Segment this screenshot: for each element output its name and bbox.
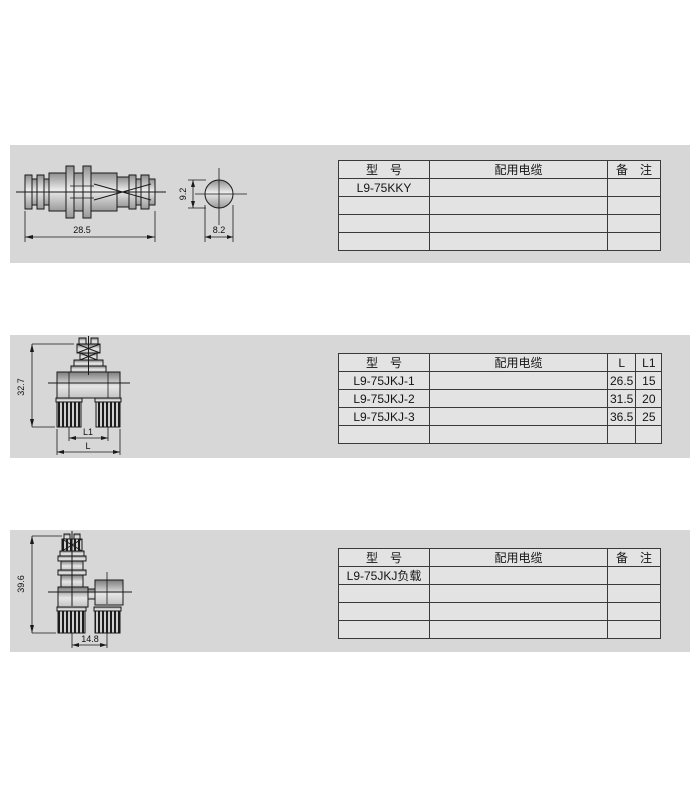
load-height-dimension: 39.6 [16, 536, 62, 633]
tee-height-dim-label: 32.7 [16, 378, 26, 396]
col-header-cable: 配用电缆 [430, 354, 608, 372]
adapter-profile-view [16, 166, 166, 218]
cable-cell [430, 215, 608, 233]
adapter-connector-drawing: 28.5 9.2 [10, 145, 330, 263]
cable-cell [430, 585, 608, 603]
section-tee-jack-panel: 32.7 L1 L 型 号 配用电缆 [10, 335, 690, 458]
table-row: L9-75JKJ-3 36.5 25 [339, 408, 662, 426]
load-spec-table: 型 号 配用电缆 备 注 L9-75JKJ负载 [338, 548, 661, 639]
remarks-cell [608, 197, 661, 215]
model-cell: L9-75JKJ-3 [339, 408, 430, 426]
model-cell [339, 585, 430, 603]
L1-cell: 20 [636, 390, 662, 408]
table-row [339, 426, 662, 444]
model-cell [339, 426, 430, 444]
table-row [339, 621, 661, 639]
model-cell: L9-75KKY [339, 179, 430, 197]
model-cell: L9-75JKJ负载 [339, 567, 430, 585]
table-header-row: 型 号 配用电缆 备 注 [339, 549, 661, 567]
section-load-panel: 39.6 14.8 型 号 配用电缆 备 注 L9-75JKJ负载 [10, 530, 690, 652]
remarks-cell [608, 233, 661, 251]
load-height-dim-label: 39.6 [16, 575, 26, 593]
catalog-page: 28.5 9.2 [0, 0, 700, 804]
cable-cell [430, 567, 608, 585]
L-cell: 36.5 [608, 408, 636, 426]
table-row: L9-75JKJ负载 [339, 567, 661, 585]
remarks-cell [608, 621, 661, 639]
table-row [339, 215, 661, 233]
load-front-view [48, 531, 132, 648]
cable-cell [430, 621, 608, 639]
model-cell [339, 233, 430, 251]
adapter-spec-table: 型 号 配用电缆 备 注 L9-75KKY [338, 160, 661, 251]
load-width-dimension: 14.8 [72, 634, 107, 647]
col-header-L1: L1 [636, 354, 662, 372]
section-adapter-panel: 28.5 9.2 [10, 145, 690, 263]
cable-cell [430, 426, 608, 444]
table-row [339, 603, 661, 621]
cable-cell [430, 372, 608, 390]
L1-cell: 25 [636, 408, 662, 426]
model-cell: L9-75JKJ-1 [339, 372, 430, 390]
load-connector-drawing: 39.6 14.8 [10, 530, 330, 652]
model-cell [339, 197, 430, 215]
col-header-model: 型 号 [339, 354, 430, 372]
cable-cell [430, 408, 608, 426]
cable-cell [430, 390, 608, 408]
col-header-L: L [608, 354, 636, 372]
col-header-cable: 配用电缆 [430, 161, 608, 179]
cable-cell [430, 233, 608, 251]
tee-front-view [48, 336, 130, 441]
tee-inner-width-dimension: L1 [69, 427, 108, 440]
tee-spec-table: 型 号 配用电缆 L L1 L9-75JKJ-1 26.5 15 L9-75JK… [338, 353, 662, 444]
load-width-dim-label: 14.8 [81, 634, 99, 644]
remarks-cell [608, 179, 661, 197]
cable-cell [430, 197, 608, 215]
table-row [339, 197, 661, 215]
remarks-cell [608, 215, 661, 233]
length-dim-label: 28.5 [73, 225, 91, 235]
table-header-row: 型 号 配用电缆 L L1 [339, 354, 662, 372]
table-header-row: 型 号 配用电缆 备 注 [339, 161, 661, 179]
L-cell: 26.5 [608, 372, 636, 390]
end-width-dim-label: 8.2 [213, 225, 226, 235]
L-cell [608, 426, 636, 444]
model-cell: L9-75JKJ-2 [339, 390, 430, 408]
col-header-model: 型 号 [339, 549, 430, 567]
remarks-cell [608, 567, 661, 585]
tee-outer-width-dim-label: L [85, 441, 90, 451]
cable-cell [430, 179, 608, 197]
L1-cell: 15 [636, 372, 662, 390]
remarks-cell [608, 585, 661, 603]
table-row: L9-75JKJ-1 26.5 15 [339, 372, 662, 390]
col-header-remarks: 备 注 [608, 161, 661, 179]
remarks-cell [608, 603, 661, 621]
model-cell [339, 215, 430, 233]
end-height-dim-label: 9.2 [178, 188, 188, 201]
L-cell: 31.5 [608, 390, 636, 408]
L1-cell [636, 426, 662, 444]
cable-cell [430, 603, 608, 621]
table-row [339, 233, 661, 251]
col-header-remarks: 备 注 [608, 549, 661, 567]
adapter-end-view [195, 168, 247, 225]
model-cell [339, 603, 430, 621]
tee-connector-drawing: 32.7 L1 L [10, 335, 330, 458]
table-row [339, 585, 661, 603]
col-header-model: 型 号 [339, 161, 430, 179]
tee-inner-width-dim-label: L1 [83, 427, 93, 437]
model-cell [339, 621, 430, 639]
table-row: L9-75JKJ-2 31.5 20 [339, 390, 662, 408]
col-header-cable: 配用电缆 [430, 549, 608, 567]
table-row: L9-75KKY [339, 179, 661, 197]
